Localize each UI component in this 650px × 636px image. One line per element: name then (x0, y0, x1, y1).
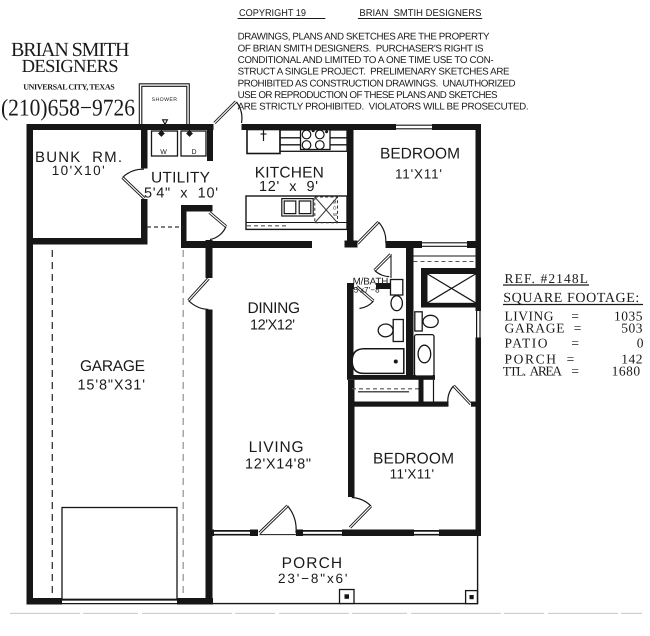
svg-text:USE OR REPRODUCTION OF THESE P: USE OR REPRODUCTION OF THESE PLANS AND S… (238, 90, 498, 101)
svg-text:12'X12': 12'X12' (250, 318, 295, 334)
svg-text:UTILITY: UTILITY (151, 170, 210, 187)
svg-text:M: M (333, 200, 337, 205)
svg-text:STRUCT A SINGLE PROJECT. PREL: STRUCT A SINGLE PROJECT. PRELIMENARY SKE… (238, 67, 510, 78)
svg-text:OF BRIAN SMITH DESIGNERS. PUR: OF BRIAN SMITH DESIGNERS. PURCHASER'S RI… (238, 43, 484, 54)
svg-text:TTL.: TTL. (503, 364, 527, 379)
svg-text:BEDROOM: BEDROOM (373, 451, 454, 468)
svg-text:12'X14'8": 12'X14'8" (245, 457, 311, 473)
svg-text:0: 0 (637, 336, 644, 351)
svg-text:11'X11': 11'X11' (390, 467, 435, 482)
svg-text:=: = (574, 321, 582, 336)
svg-text:12' x 9': 12' x 9' (259, 179, 318, 195)
svg-text:15'8"X31': 15'8"X31' (78, 378, 146, 394)
svg-text:11'X11': 11'X11' (395, 167, 442, 182)
svg-text:D: D (191, 149, 196, 156)
svg-text:1680: 1680 (612, 364, 641, 379)
svg-text:AREA: AREA (530, 364, 563, 379)
svg-text:503: 503 (621, 321, 643, 336)
svg-text:5'4" x 10': 5'4" x 10' (144, 186, 218, 202)
svg-text:DRAWINGS, PLANS AND SKETCHES A: DRAWINGS, PLANS AND SKETCHES ARE THE PRO… (238, 32, 490, 43)
svg-text:UNIVERSAL CITY, TEXAS: UNIVERSAL CITY, TEXAS (23, 82, 115, 91)
svg-text:BEDROOM: BEDROOM (380, 146, 460, 163)
svg-text:5'x7'−8": 5'x7'−8" (354, 286, 383, 295)
svg-text:COPYRIGHT 19: COPYRIGHT 19 (239, 8, 306, 19)
svg-text:23'−8"x6': 23'−8"x6' (278, 571, 348, 586)
svg-text:(210)658−9726: (210)658−9726 (1, 96, 135, 122)
svg-text:LIVING: LIVING (249, 439, 304, 456)
svg-text:GARAGE: GARAGE (80, 358, 145, 375)
svg-text:SHOWER: SHOWER (152, 97, 178, 103)
svg-text:BRIAN SMTIH DESIGNERS: BRIAN SMTIH DESIGNERS (359, 8, 481, 19)
svg-text:DESIGNERS: DESIGNERS (22, 57, 119, 77)
svg-text:DINING: DINING (248, 300, 301, 317)
svg-text:=: = (571, 336, 579, 351)
svg-text:REF. #2148L: REF. #2148L (505, 271, 589, 286)
svg-text:W: W (160, 149, 167, 156)
svg-text:=: = (571, 364, 579, 379)
svg-text:PROHIBITED AS CONSTRUCTION DRA: PROHIBITED AS CONSTRUCTION DRAWINGS. UNA… (238, 78, 516, 89)
svg-text:CONDITIONAL AND LIMITED TO A O: CONDITIONAL AND LIMITED TO A ONE TIME US… (238, 55, 494, 66)
svg-text:GARAGE: GARAGE (505, 321, 565, 336)
svg-text:O: O (333, 206, 337, 211)
svg-text:SQUARE FOOTAGE:: SQUARE FOOTAGE: (503, 291, 639, 306)
svg-text:PORCH: PORCH (282, 555, 343, 572)
svg-text:ARE STRICTLY PROHIBITED. VIOL: ARE STRICTLY PROHIBITED. VIOLATORS WILL … (238, 102, 529, 113)
